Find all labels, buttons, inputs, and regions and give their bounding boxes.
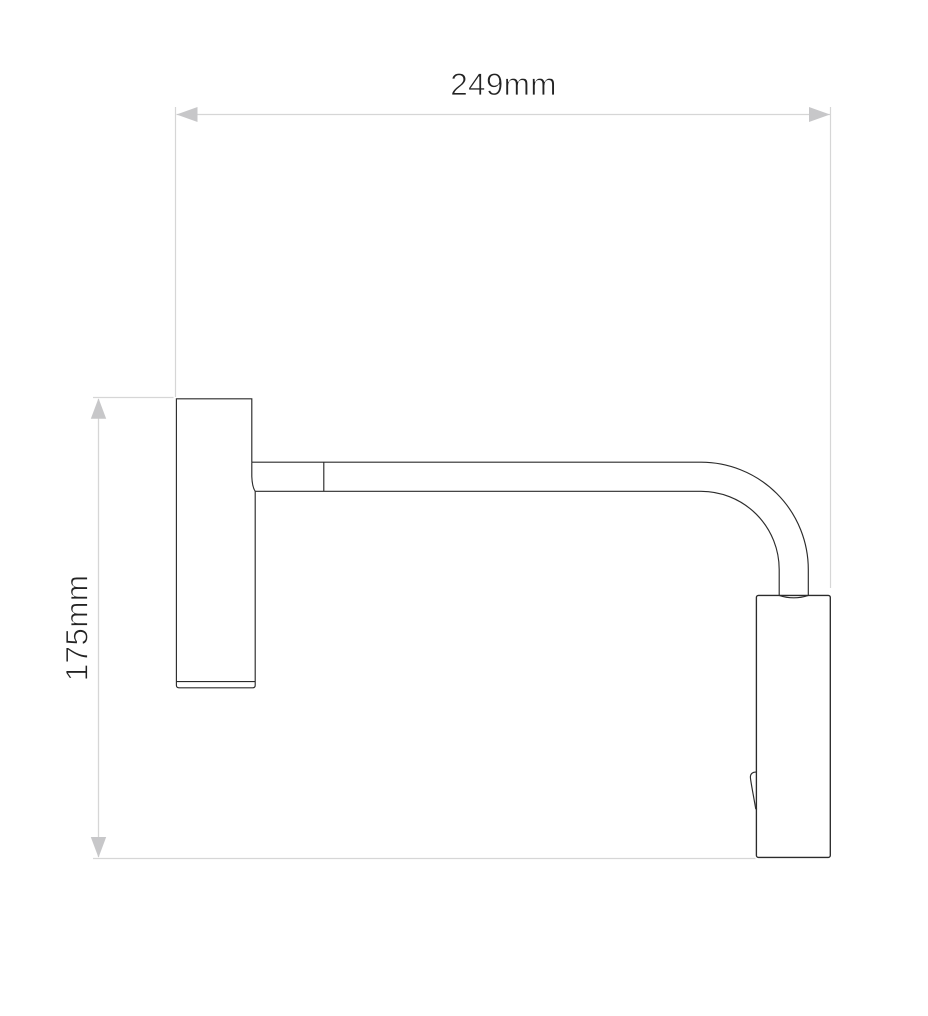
svg-text:175mm: 175mm	[59, 575, 95, 682]
svg-text:249mm: 249mm	[450, 66, 557, 102]
